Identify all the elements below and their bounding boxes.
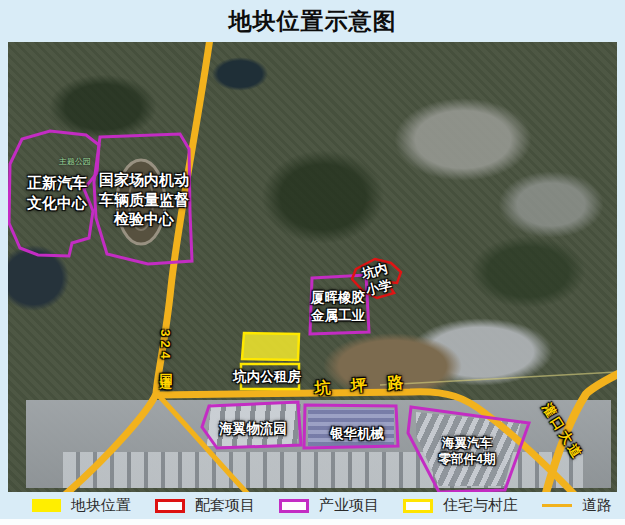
- plot-location-swatch: [32, 499, 61, 512]
- road-swatch: [542, 504, 572, 507]
- label-g324-road: 324国道: [157, 329, 174, 371]
- label-haiyi-logistics: 海翼物流园: [219, 420, 287, 438]
- label-xiahui-industry: 厦晖橡胶 金属工业: [311, 289, 365, 324]
- legend-item-supporting-project: 配套项目: [155, 496, 255, 515]
- legend-label: 配套项目: [195, 496, 255, 515]
- legend-item-road: 道路: [542, 496, 612, 515]
- label-inspection-center: 国家场内机动 车辆质量监督 检验中心: [99, 170, 189, 229]
- legend: 地块位置 配套项目 产业项目 住宅与村庄 道路: [0, 492, 625, 519]
- label-haiyi-auto-parts: 海翼汽车 零部件4期: [439, 435, 496, 468]
- label-theme-park: 主题公园: [59, 157, 91, 167]
- page-title: 地块位置示意图: [229, 6, 397, 37]
- legend-item-industrial-project: 产业项目: [279, 496, 379, 515]
- legend-label: 产业项目: [319, 496, 379, 515]
- legend-item-residential-village: 住宅与村庄: [403, 496, 518, 515]
- legend-label: 住宅与村庄: [443, 496, 518, 515]
- label-zhengxin-center: 正新汽车 文化中心: [27, 173, 87, 212]
- map-canvas: 主题公园 正新汽车 文化中心 国家场内机动 车辆质量监督 检验中心 厦晖橡胶 金…: [8, 42, 617, 492]
- title-bar: 地块位置示意图: [0, 0, 625, 42]
- legend-label: 地块位置: [71, 496, 131, 515]
- residential-village-swatch: [403, 499, 433, 513]
- map-annotation-layer: [8, 42, 617, 492]
- bottom-margin: [0, 519, 625, 525]
- legend-label: 道路: [582, 496, 612, 515]
- minor-road: [380, 372, 617, 385]
- road-branch: [160, 397, 248, 492]
- legend-item-plot-location: 地块位置: [32, 496, 131, 515]
- supporting-project-swatch: [155, 499, 185, 513]
- label-gongzufang: 坑内公租房: [233, 368, 301, 386]
- industrial-project-swatch: [279, 499, 309, 513]
- label-yinhua-machinery: 银华机械: [330, 425, 384, 443]
- plot-location-area: [242, 333, 299, 360]
